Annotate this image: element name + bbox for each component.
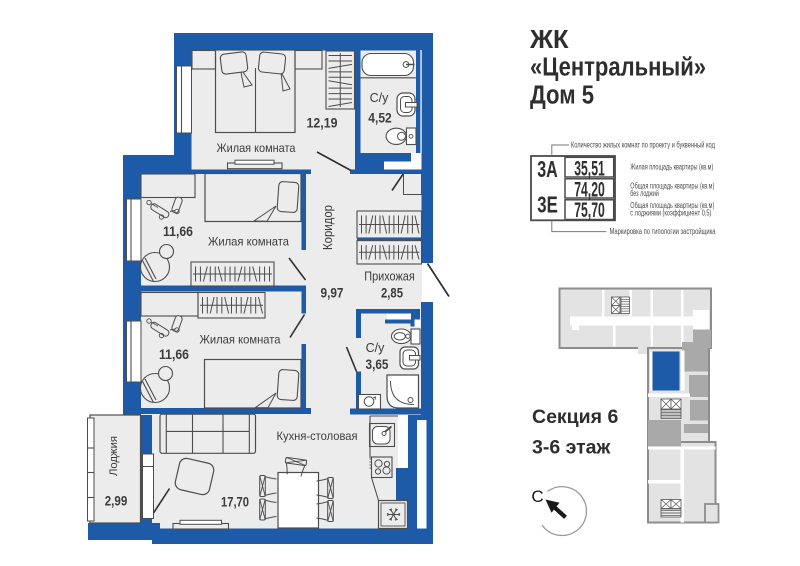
svg-text:2,85: 2,85 [381,285,403,301]
svg-text:3,65: 3,65 [366,356,389,372]
svg-text:Кухня-столовая: Кухня-столовая [277,429,358,443]
svg-text:3Е: 3Е [537,192,558,218]
svg-text:с лоджиями (коэффициент 0,5): с лоджиями (коэффициент 0,5) [630,209,711,218]
svg-text:35,51: 35,51 [574,157,605,180]
svg-text:С: С [531,487,543,506]
svg-text:11,66: 11,66 [159,346,189,362]
svg-text:«Центральный»: «Центральный» [530,54,706,82]
svg-text:Лоджия: Лоджия [108,436,120,476]
svg-text:Жилая площадь квартиры (кв.м): Жилая площадь квартиры (кв.м) [630,163,713,172]
svg-text:3-6 этаж: 3-6 этаж [532,437,611,459]
svg-text:без лоджий: без лоджий [630,189,659,198]
svg-text:Секция 6: Секция 6 [532,406,618,428]
svg-text:Жилая комната: Жилая комната [208,235,289,249]
svg-text:Количество жилых комнат по про: Количество жилых комнат по проекту и бук… [571,140,715,149]
svg-text:Жилая комната: Жилая комната [200,333,281,347]
svg-text:С/у: С/у [366,341,386,355]
svg-text:Дом 5: Дом 5 [530,81,594,109]
svg-text:75,70: 75,70 [574,199,605,222]
svg-text:9,97: 9,97 [321,285,344,301]
svg-text:11,66: 11,66 [163,223,193,239]
svg-text:17,70: 17,70 [221,494,249,510]
svg-text:4,52: 4,52 [368,110,392,126]
svg-text:Коридор: Коридор [321,205,335,250]
svg-text:Жилая комната: Жилая комната [217,141,296,155]
svg-text:С/у: С/у [370,91,390,105]
svg-text:3А: 3А [537,156,558,182]
svg-text:12,19: 12,19 [307,115,338,131]
svg-text:Маркировка по типологии застро: Маркировка по типологии застройщика [610,227,716,236]
svg-text:ЖК: ЖК [529,26,569,54]
svg-text:Прихожая: Прихожая [364,269,415,284]
svg-text:2,99: 2,99 [105,494,128,509]
